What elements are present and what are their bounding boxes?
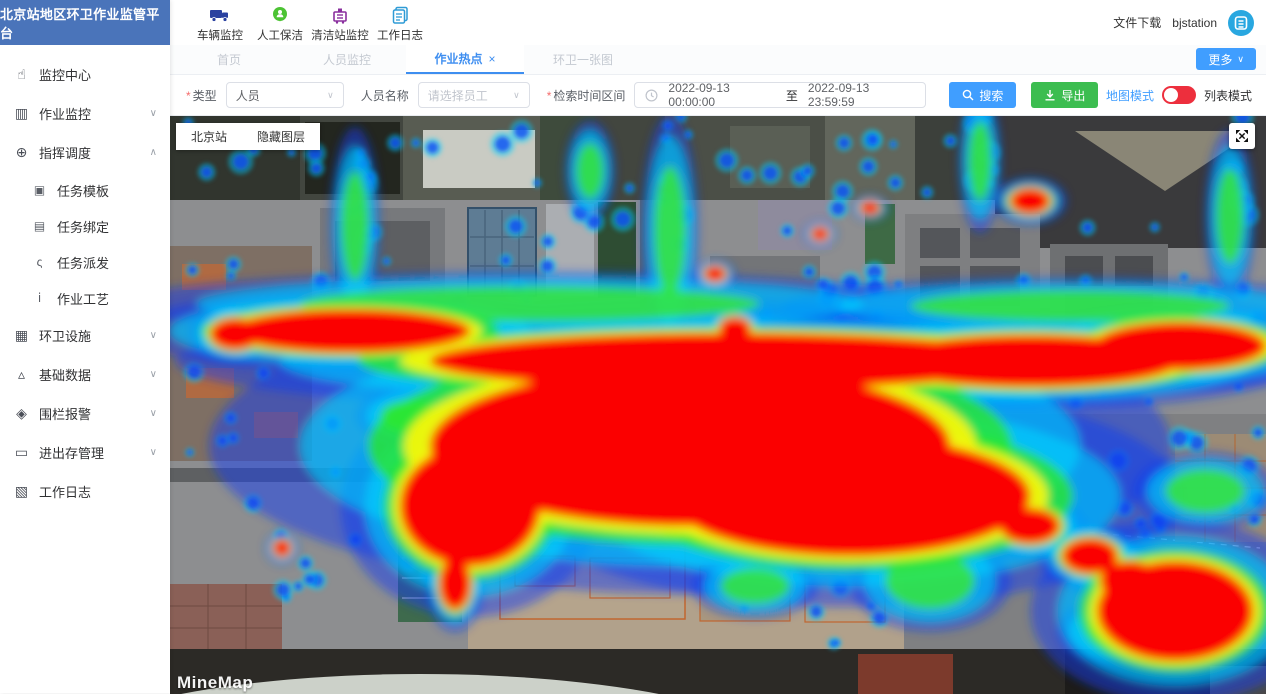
tab-operation-hotspot[interactable]: 作业热点 × (406, 45, 524, 74)
sidebar-item-task-template[interactable]: ▣ 任务模板 (0, 172, 170, 208)
document-icon (391, 5, 409, 25)
sidebar-item-label: 任务绑定 (57, 217, 109, 236)
file-download-link[interactable]: 文件下载 (1113, 14, 1161, 31)
basic-data-icon: ▵ (13, 366, 30, 383)
required-mark: * (186, 89, 191, 103)
sidebar-item-work-log[interactable]: ▧ 工作日志 (0, 472, 170, 511)
sidebar-item-label: 任务派发 (57, 253, 109, 272)
hide-layer-button[interactable]: 隐藏图层 (242, 123, 320, 150)
export-button[interactable]: 导出 (1031, 82, 1098, 108)
task-template-icon: ▣ (31, 183, 48, 197)
sidebar-item-label: 任务模板 (57, 181, 109, 200)
search-label: 搜索 (979, 87, 1003, 104)
module-manual-cleaning[interactable]: 人工保洁 (250, 0, 310, 43)
search-icon (962, 89, 974, 101)
operation-process-icon: ⅰ (31, 291, 48, 305)
list-mode-label[interactable]: 列表模式 (1204, 87, 1252, 104)
user-avatar[interactable] (1228, 10, 1254, 36)
more-label: 更多 (1208, 51, 1232, 68)
inventory-management-icon: ▭ (13, 444, 30, 461)
app-window: 北京站地区环卫作业监管平台 ☝ 监控中心 ▥ 作业监控 ∨ ⊕ 指挥调度 ∧ ▣… (0, 0, 1266, 693)
tab-label: 作业热点 (434, 50, 482, 67)
sidebar-item-command-dispatch[interactable]: ⊕ 指挥调度 ∧ (0, 133, 170, 172)
name-label: 人员名称 (361, 87, 409, 104)
tab-home[interactable]: 首页 (170, 45, 288, 74)
export-label: 导出 (1061, 87, 1085, 104)
sidebar-item-label: 监控中心 (39, 65, 91, 84)
required-mark: * (547, 89, 552, 103)
chevron-down-icon: ∨ (150, 330, 157, 341)
download-icon (1044, 89, 1056, 101)
mode-toggle-switch[interactable] (1162, 86, 1196, 104)
monitor-center-icon: ☝ (13, 66, 30, 83)
chevron-down-icon: ∨ (150, 108, 157, 119)
sidebar-item-operation-monitor[interactable]: ▥ 作业监控 ∨ (0, 94, 170, 133)
sidebar-item-task-binding[interactable]: ▤ 任务绑定 (0, 208, 170, 244)
fullscreen-button[interactable] (1229, 123, 1255, 149)
module-cleaning-station-monitor[interactable]: 清洁站监控 (310, 0, 370, 43)
sidebar-item-sanitation-facility[interactable]: ▦ 环卫设施 ∨ (0, 316, 170, 355)
sidebar: 北京站地区环卫作业监管平台 ☝ 监控中心 ▥ 作业监控 ∨ ⊕ 指挥调度 ∧ ▣… (0, 0, 170, 693)
sidebar-item-label: 工作日志 (39, 482, 91, 501)
sidebar-item-label: 指挥调度 (39, 143, 91, 162)
main-panel: 车辆监控 人工保洁 清洁站监控 (170, 0, 1266, 693)
map-layer-chip: 北京站 隐藏图层 (176, 123, 320, 150)
sanitation-facility-icon: ▦ (13, 327, 30, 344)
personnel-name-select[interactable]: 请选择员工 ∨ (418, 82, 530, 108)
tab-label: 人员监控 (323, 51, 371, 68)
toggle-knob (1164, 88, 1178, 102)
task-dispatch-icon: ς (31, 255, 48, 269)
station-name-label[interactable]: 北京站 (176, 123, 242, 150)
chevron-down-icon: ∨ (317, 90, 334, 101)
clock-icon (645, 89, 658, 102)
sidebar-item-monitor-center[interactable]: ☝ 监控中心 (0, 55, 170, 94)
module-shortcuts: 车辆监控 人工保洁 清洁站监控 (170, 0, 430, 43)
chevron-down-icon: ∨ (150, 369, 157, 380)
time-end-value: 2022-09-13 23:59:59 (808, 81, 915, 109)
time-start-value: 2022-09-13 00:00:00 (668, 81, 775, 109)
sidebar-item-label: 环卫设施 (39, 326, 91, 345)
task-binding-icon: ▤ (31, 219, 48, 233)
close-icon[interactable]: × (489, 52, 496, 66)
tab-sanitation-map[interactable]: 环卫一张图 (524, 45, 642, 74)
work-log-icon: ▧ (13, 483, 30, 500)
header-right: 文件下载 bjstation (1113, 0, 1254, 45)
map-mode-label[interactable]: 地图模式 (1106, 87, 1154, 104)
type-label: *类型 (186, 87, 217, 104)
chevron-down-icon: ∨ (503, 90, 520, 101)
module-label: 车辆监控 (197, 27, 243, 43)
mode-toggle-group: 地图模式 列表模式 (1106, 86, 1252, 104)
sidebar-item-label: 基础数据 (39, 365, 91, 384)
sidebar-item-fence-alarm[interactable]: ◈ 围栏报警 ∨ (0, 394, 170, 433)
sidebar-item-label: 作业监控 (39, 104, 91, 123)
person-pin-icon (271, 5, 289, 25)
type-select-value: 人员 (236, 87, 260, 104)
module-vehicle-monitor[interactable]: 车辆监控 (190, 0, 250, 43)
chevron-up-icon: ∧ (150, 147, 157, 158)
chevron-down-icon: ∨ (150, 447, 157, 458)
more-button[interactable]: 更多 ∨ (1196, 48, 1256, 70)
module-label: 清洁站监控 (311, 27, 369, 43)
time-range-picker[interactable]: 2022-09-13 00:00:00 至 2022-09-13 23:59:5… (634, 82, 926, 108)
username: bjstation (1172, 16, 1217, 30)
command-dispatch-icon: ⊕ (13, 144, 30, 161)
sidebar-item-task-dispatch[interactable]: ς 任务派发 (0, 244, 170, 280)
personnel-name-placeholder: 请选择员工 (428, 87, 488, 104)
sidebar-nav: ☝ 监控中心 ▥ 作业监控 ∨ ⊕ 指挥调度 ∧ ▣ 任务模板 ▤ (0, 45, 170, 511)
sidebar-submenu: ▣ 任务模板 ▤ 任务绑定 ς 任务派发 ⅰ 作业工艺 (0, 172, 170, 316)
operation-monitor-icon: ▥ (13, 105, 30, 122)
module-label: 人工保洁 (257, 27, 303, 43)
truck-icon (209, 5, 231, 25)
chevron-down-icon: ∨ (150, 408, 157, 419)
top-header: 车辆监控 人工保洁 清洁站监控 (170, 0, 1266, 45)
tab-strip: 首页 人员监控 作业热点 × 环卫一张图 更多 ∨ (170, 45, 1266, 75)
sidebar-item-label: 作业工艺 (57, 289, 109, 308)
search-button[interactable]: 搜索 (949, 82, 1016, 108)
fence-alarm-icon: ◈ (13, 405, 30, 422)
time-separator: 至 (786, 87, 798, 104)
sidebar-item-inventory-management[interactable]: ▭ 进出存管理 ∨ (0, 433, 170, 472)
sidebar-item-label: 进出存管理 (39, 443, 104, 462)
module-work-log[interactable]: 工作日志 (370, 0, 430, 43)
tab-label: 环卫一张图 (553, 51, 613, 68)
sidebar-item-operation-process[interactable]: ⅰ 作业工艺 (0, 280, 170, 316)
filter-bar: *类型 人员 ∨ 人员名称 请选择员工 ∨ *检索时间区间 2022-09-13… (170, 75, 1266, 116)
sidebar-item-basic-data[interactable]: ▵ 基础数据 ∨ (0, 355, 170, 394)
module-label: 工作日志 (377, 27, 423, 43)
tab-personnel-monitor[interactable]: 人员监控 (288, 45, 406, 74)
map-canvas[interactable] (170, 116, 1266, 694)
sidebar-item-label: 围栏报警 (39, 404, 91, 423)
chevron-down-icon: ∨ (1237, 54, 1244, 65)
type-select[interactable]: 人员 ∨ (226, 82, 344, 108)
time-range-label: *检索时间区间 (547, 87, 626, 104)
expand-arrows-icon (1234, 128, 1250, 144)
station-icon (330, 5, 350, 25)
app-title: 北京站地区环卫作业监管平台 (0, 0, 170, 45)
tab-label: 首页 (217, 51, 241, 68)
map-provider-watermark: MineMap (177, 673, 253, 693)
map-area[interactable]: 北京站 隐藏图层 MineMap (170, 116, 1266, 694)
